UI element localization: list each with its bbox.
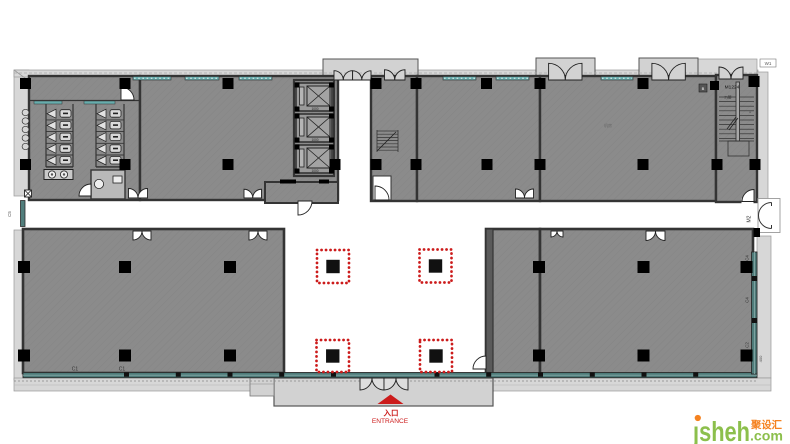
svg-text:机房: 机房 xyxy=(604,122,612,128)
svg-text:C4: C4 xyxy=(745,297,750,303)
svg-text:1000: 1000 xyxy=(311,169,318,173)
svg-text:400: 400 xyxy=(758,355,763,362)
svg-text:C5: C5 xyxy=(7,211,12,217)
svg-text:M2: M2 xyxy=(747,215,753,222)
svg-text:1000: 1000 xyxy=(311,107,318,111)
svg-text:C4: C4 xyxy=(745,255,750,261)
svg-text:C2: C2 xyxy=(745,342,750,348)
svg-text:C1: C1 xyxy=(72,367,79,373)
svg-text:.com: .com xyxy=(750,428,783,444)
svg-text:W1: W1 xyxy=(765,61,772,66)
svg-text:1: 1 xyxy=(749,110,751,114)
svg-text:1000: 1000 xyxy=(311,138,318,142)
svg-text:ENTRANCE: ENTRANCE xyxy=(372,418,409,425)
svg-text:2)层: 2)层 xyxy=(724,95,731,100)
svg-text:入口: 入口 xyxy=(383,409,399,418)
svg-text:C1: C1 xyxy=(119,367,126,373)
svg-text:B: B xyxy=(702,86,705,91)
svg-text:M1224: M1224 xyxy=(725,85,740,91)
